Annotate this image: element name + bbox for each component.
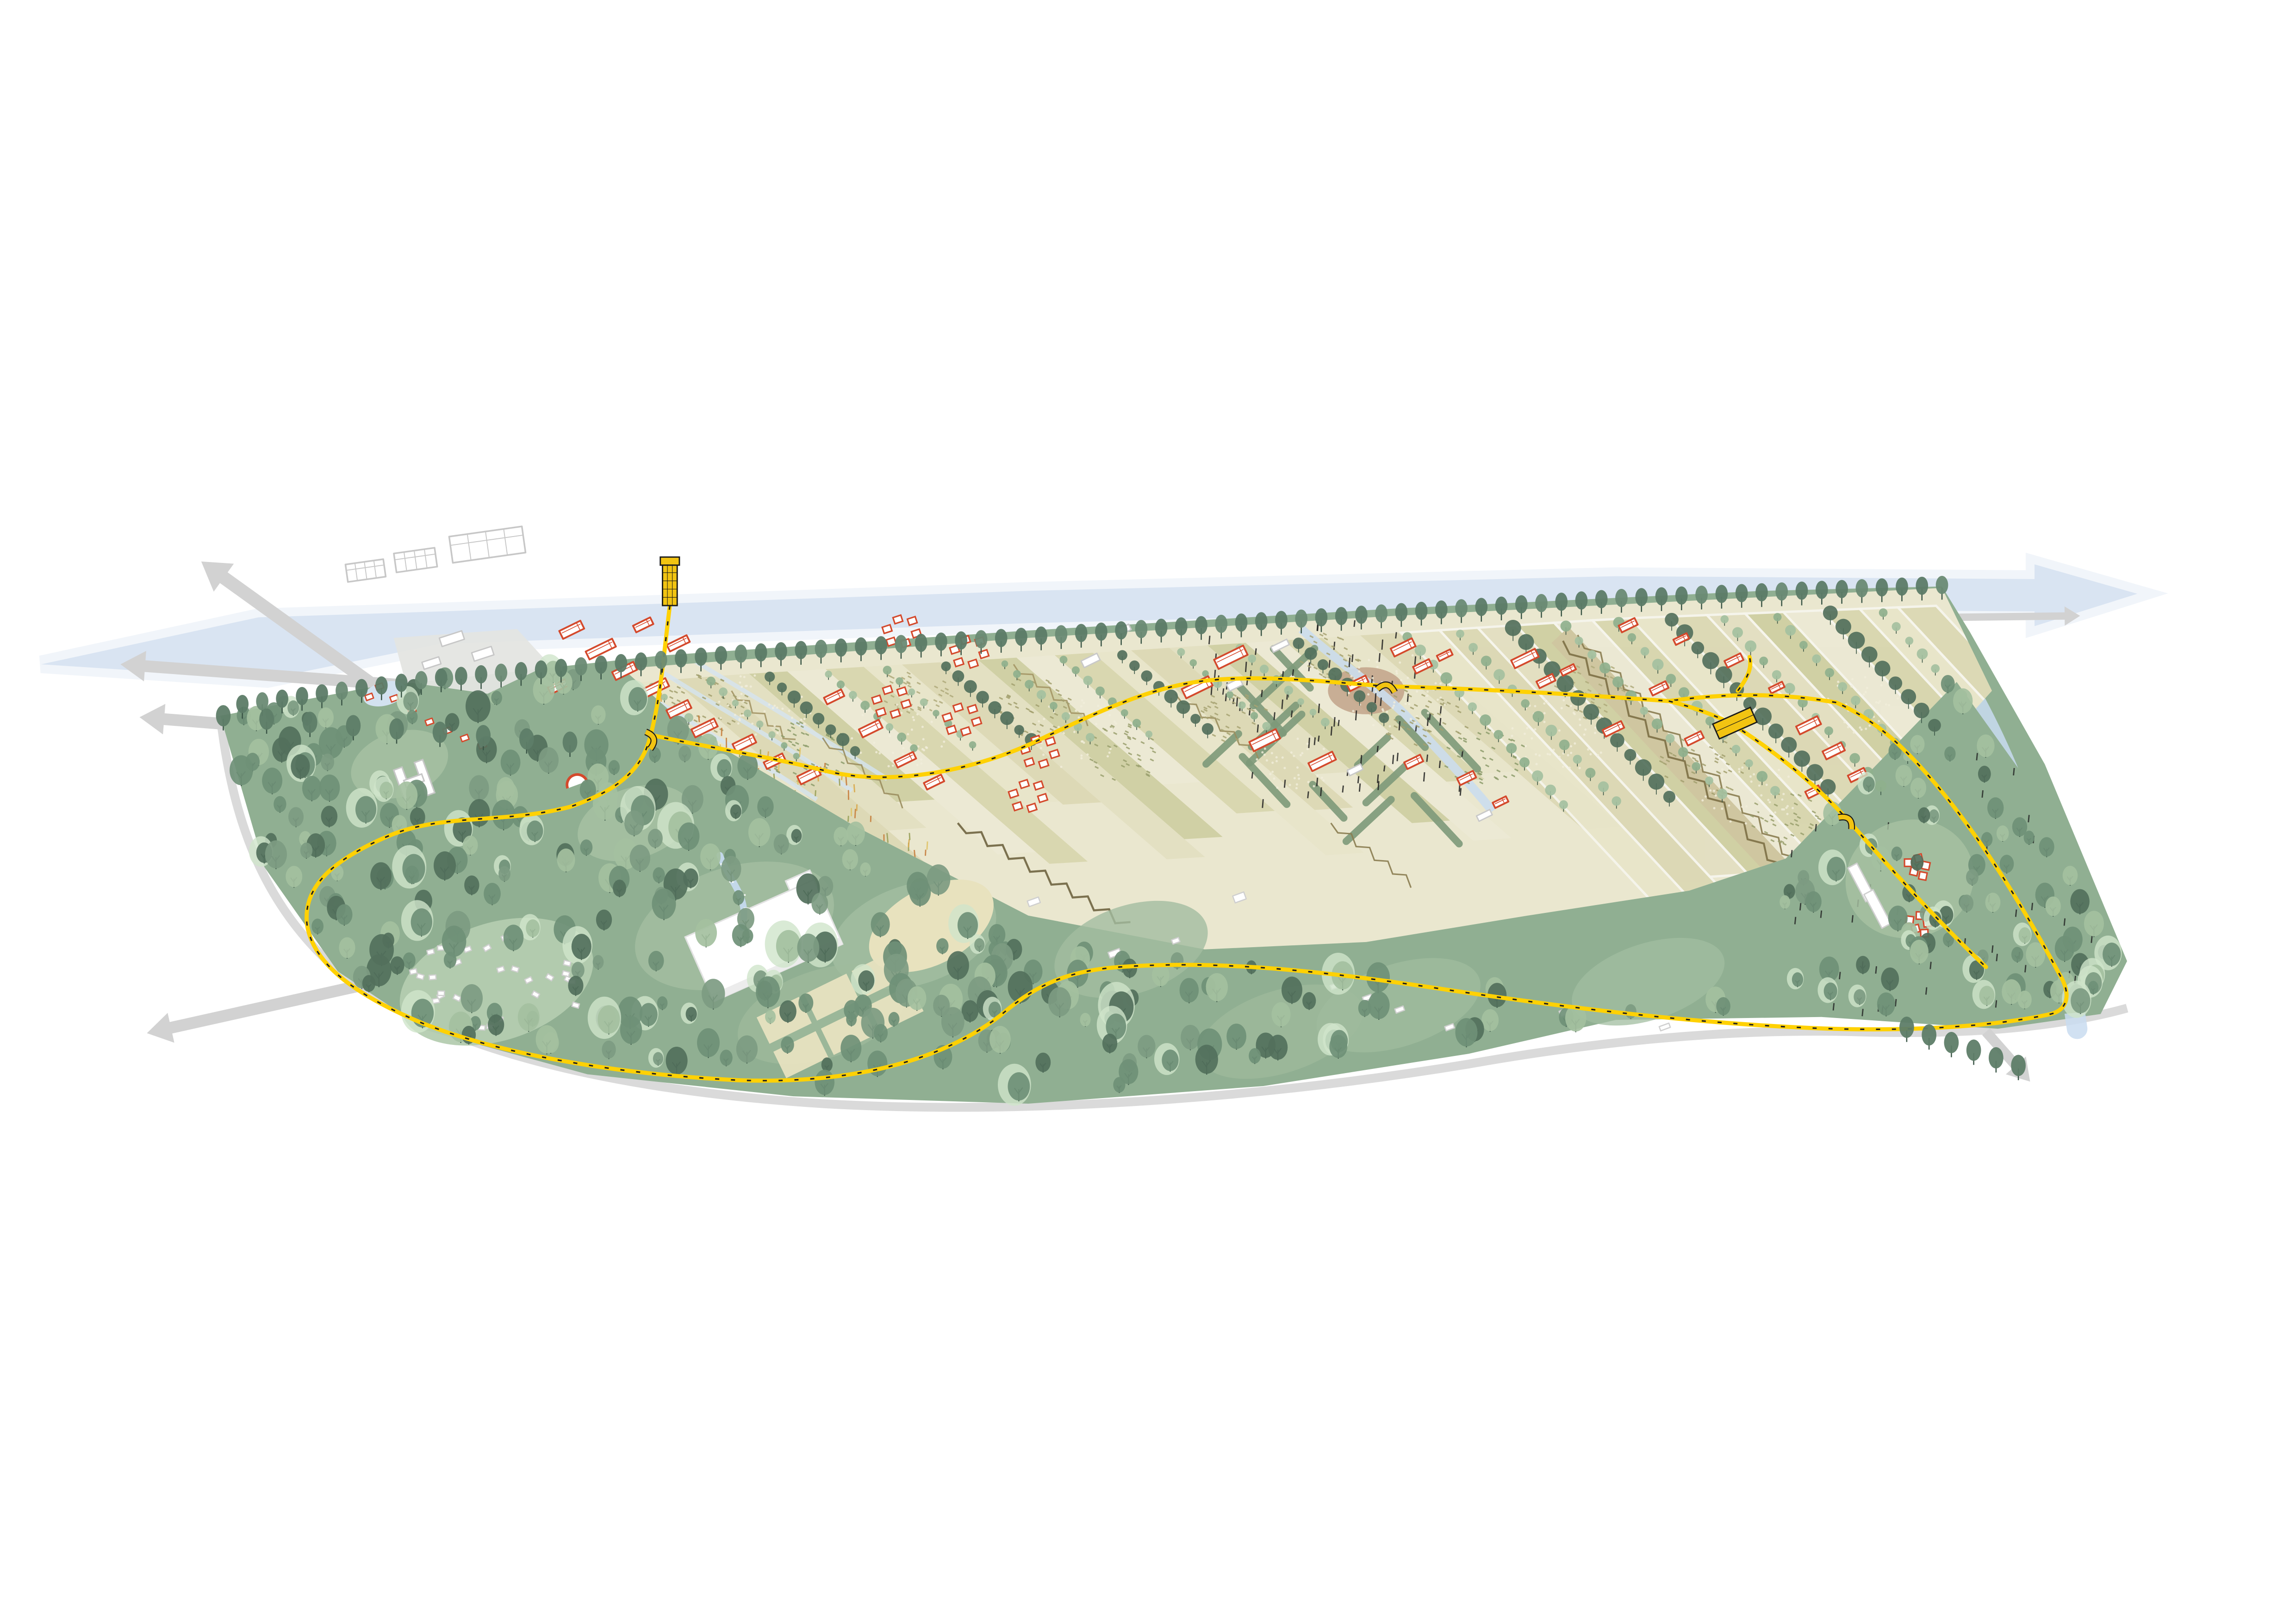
tiny-house <box>410 969 417 974</box>
access-arrow <box>147 985 364 1043</box>
yellow-tower-landmark <box>660 557 679 606</box>
tiny-house <box>438 991 444 996</box>
pavilion <box>1659 1023 1670 1031</box>
tiny-house <box>427 949 434 955</box>
context-buildings <box>345 526 525 582</box>
masterplan-illustration <box>0 0 2296 1624</box>
rowhouse-sketch <box>345 559 386 582</box>
masterplan-canvas <box>0 0 2296 1624</box>
rowhouse-sketch <box>394 548 437 572</box>
tiny-house <box>429 975 436 980</box>
rowhouse-sketch <box>449 526 525 563</box>
